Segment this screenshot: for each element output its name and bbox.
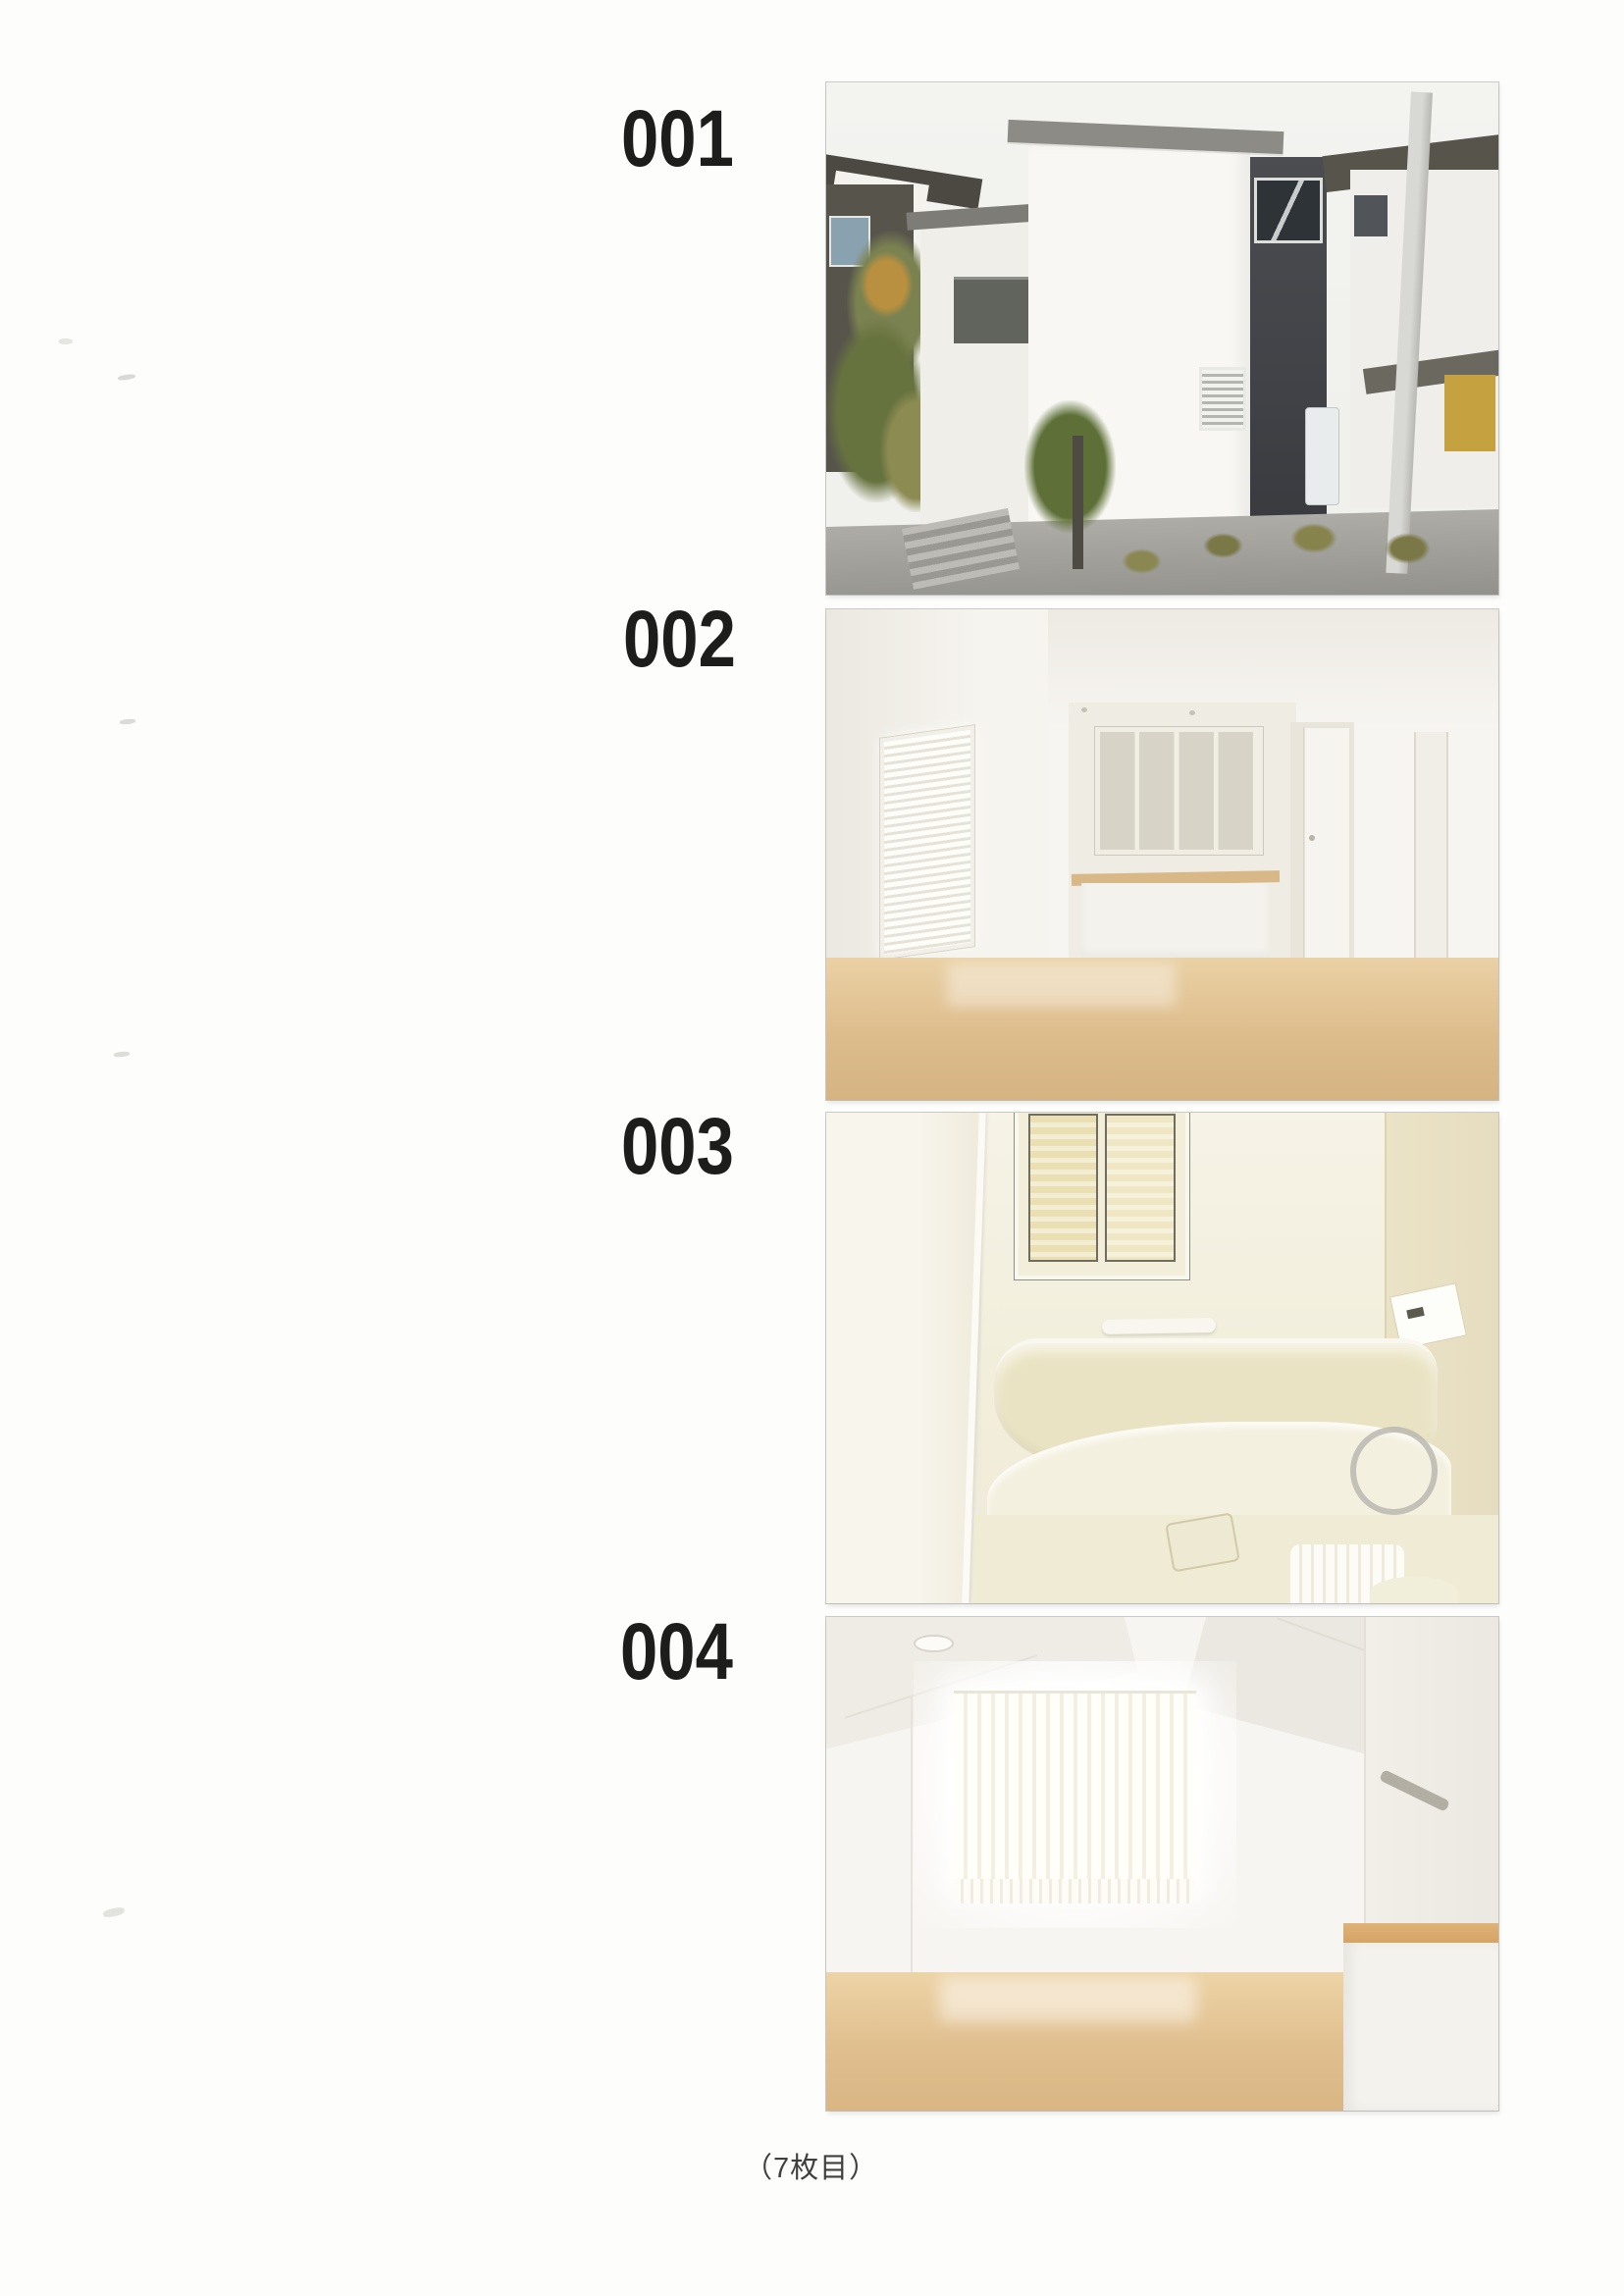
grab-bar [1102, 1318, 1217, 1334]
ceiling-downlight-hole [1189, 710, 1195, 715]
scan-artifact-mark [59, 339, 73, 344]
scan-artifact-mark [114, 1051, 130, 1057]
wall-corner-line [911, 1696, 913, 1972]
photo-number-label: 001 [621, 99, 734, 180]
curtain-bottom-ruffle [954, 1879, 1196, 1904]
counter-wood-top [1343, 1923, 1498, 1944]
page-number-footer: （7枚目） [744, 2152, 878, 2186]
wash-bowl [1371, 1577, 1458, 1604]
bathroom-left-wall [826, 1113, 981, 1603]
weeds [1122, 548, 1162, 574]
yellow-wall-patch [1444, 375, 1494, 451]
control-panel-display [1406, 1307, 1424, 1320]
door-knob [1309, 835, 1315, 841]
window-pane [1105, 1114, 1175, 1262]
window-pane [1028, 1114, 1098, 1262]
scanned-photo-sheet: { "document": { "items": [ { "label": "0… [0, 0, 1624, 2296]
upper-floor-window [1254, 178, 1324, 244]
balcony [954, 277, 1034, 343]
ceiling-light [914, 1635, 954, 1652]
louver-vent-window [1199, 367, 1246, 431]
interior-door [1303, 727, 1350, 961]
photo-number-label: 003 [621, 1107, 734, 1187]
bathroom-window [1015, 1113, 1189, 1279]
window-with-blinds [880, 725, 974, 959]
water-heater-unit [1305, 407, 1340, 504]
autumn-foliage [860, 251, 914, 318]
photo-house-exterior [826, 82, 1498, 595]
scan-artifact-mark [102, 1906, 125, 1918]
weeds [1290, 523, 1337, 553]
window-with-sheer-curtain [954, 1691, 1196, 1888]
floor-light-reflection [940, 1977, 1195, 2021]
tree-trunk [1073, 436, 1083, 569]
garden-shrub [1024, 400, 1115, 534]
right-house-window [1354, 195, 1388, 236]
photo-number-label: 002 [623, 600, 736, 680]
photo-attic-room [826, 1617, 1498, 2111]
weeds [1385, 533, 1432, 563]
glass-cabinet [1095, 727, 1263, 855]
photo-living-dining-kitchen [826, 609, 1498, 1100]
scan-artifact-mark [118, 374, 136, 381]
floor-light-reflection [947, 963, 1176, 1007]
far-right-door [1414, 732, 1447, 963]
scan-artifact-mark [120, 718, 135, 725]
house-side-wall [920, 221, 1034, 539]
kitchen-counter-base [1081, 883, 1270, 960]
counter-front [1343, 1943, 1498, 2111]
photo-number-label: 004 [620, 1612, 733, 1693]
photo-unit-bathroom [826, 1113, 1498, 1603]
weeds [1203, 533, 1243, 558]
